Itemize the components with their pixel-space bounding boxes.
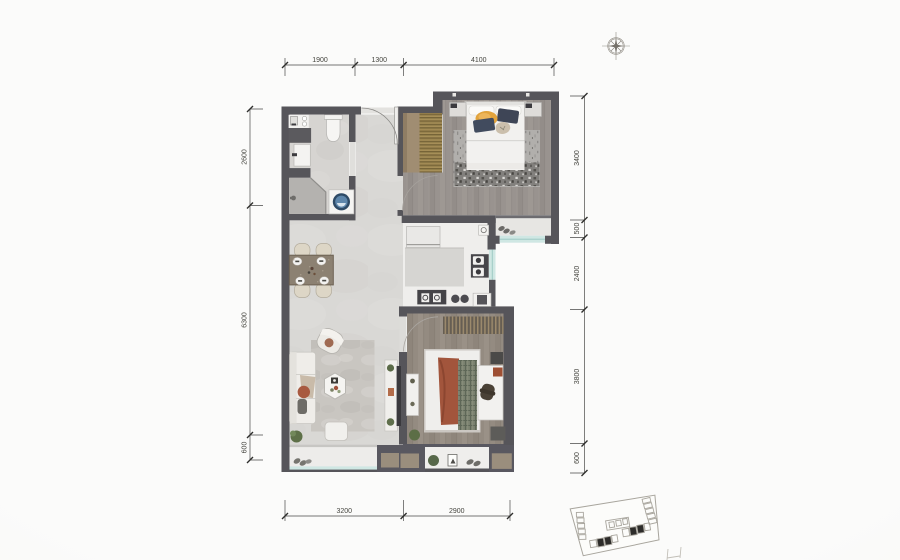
svg-text:3800: 3800: [574, 369, 581, 385]
svg-text:500: 500: [574, 223, 581, 235]
svg-text:1300: 1300: [372, 57, 388, 64]
svg-text:2600: 2600: [242, 149, 249, 165]
svg-text:4100: 4100: [471, 57, 487, 64]
svg-text:3200: 3200: [337, 508, 353, 515]
svg-text:600: 600: [574, 452, 581, 464]
svg-text:2900: 2900: [449, 508, 465, 515]
svg-text:1900: 1900: [312, 57, 328, 64]
svg-text:3400: 3400: [574, 150, 581, 166]
svg-text:2400: 2400: [574, 266, 581, 282]
svg-text:600: 600: [242, 442, 249, 454]
svg-text:6300: 6300: [242, 312, 249, 328]
